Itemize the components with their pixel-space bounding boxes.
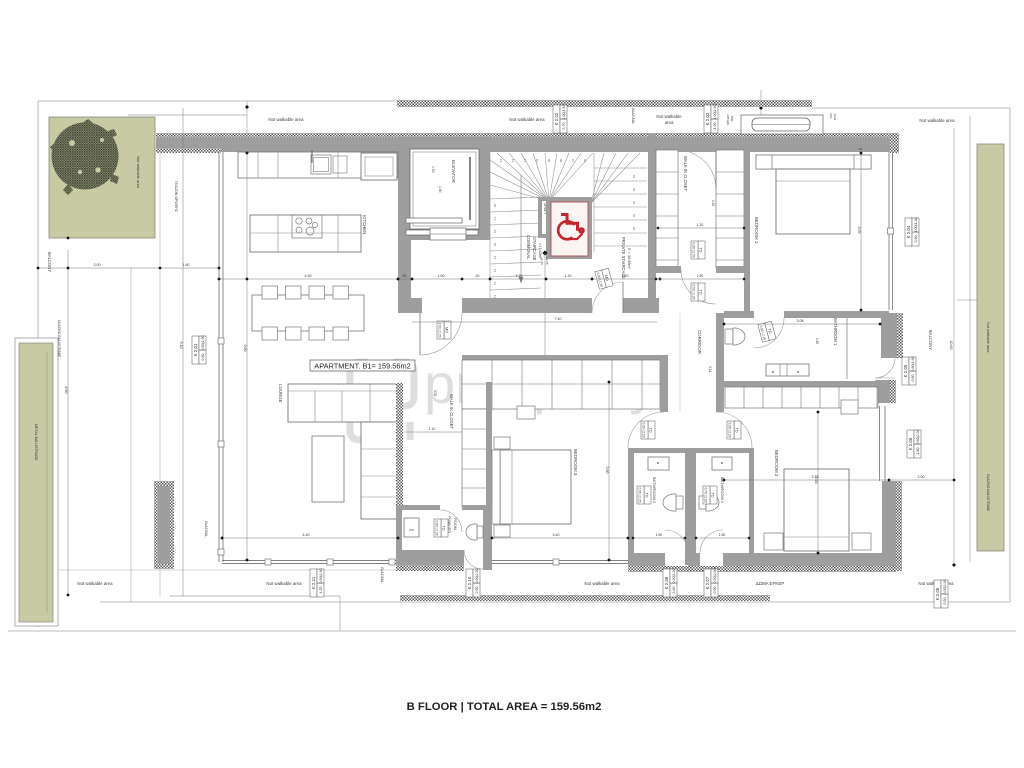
svg-text:.30: .30 [475, 274, 480, 278]
svg-text:1.00|1.45: 1.00|1.45 [562, 105, 566, 120]
svg-text:METAL BALUSTRADE: METAL BALUSTRADE [34, 424, 38, 461]
svg-text:STAIRCASE: STAIRCASE [532, 237, 537, 261]
svg-text:16: 16 [493, 230, 497, 234]
svg-text:1.80: 1.80 [438, 186, 442, 193]
svg-text:BATHROOM 3: BATHROOM 3 [652, 477, 657, 504]
svg-text:12: 12 [493, 282, 497, 286]
svg-text:11: 11 [493, 295, 497, 298]
svg-text:LOUNGE: LOUNGE [278, 384, 283, 403]
svg-text:.30: .30 [402, 274, 407, 278]
svg-text:0.90 | 2.20: 0.90 | 2.20 [642, 422, 646, 437]
svg-text:TD: TD [699, 289, 703, 294]
svg-text:Not walkable area: Not walkable area [268, 117, 304, 122]
svg-text:MW: MW [730, 116, 734, 121]
svg-text:1.80: 1.80 [183, 263, 190, 267]
svg-text:1.00 | 2.20: 1.00 | 2.20 [438, 322, 442, 337]
svg-text:14: 14 [493, 256, 497, 260]
svg-text:15: 15 [493, 243, 497, 247]
svg-text:02: 02 [632, 201, 636, 205]
svg-text:1.30: 1.30 [565, 274, 572, 278]
svg-text:1.10: 1.10 [429, 427, 436, 431]
svg-text:ΔΩΜΑ ΕΡΚΕΡ: ΔΩΜΑ ΕΡΚΕΡ [756, 581, 784, 586]
svg-text:VAV: VAV [829, 113, 833, 119]
svg-text:KITCHEN: KITCHEN [362, 215, 367, 234]
svg-text:0.50: 0.50 [943, 598, 947, 605]
svg-text:K 2.01: K 2.01 [193, 343, 198, 356]
svg-text:17: 17 [493, 217, 497, 221]
svg-text:1.90: 1.90 [656, 533, 663, 537]
svg-text:1.60: 1.60 [815, 338, 819, 344]
svg-text:COMMUNAL: COMMUNAL [526, 235, 531, 260]
svg-text:Not walkable area: Not walkable area [509, 117, 545, 122]
svg-text:BATHROOM 1: BATHROOM 1 [833, 318, 838, 346]
svg-text:E = 38.88m²: E = 38.88m² [627, 248, 631, 270]
svg-text:Not walkable: Not walkable [656, 114, 682, 119]
svg-text:10: 10 [535, 159, 539, 163]
svg-text:1.80: 1.80 [916, 448, 920, 455]
svg-text:0.50: 0.50 [475, 587, 479, 594]
svg-text:.46: .46 [858, 147, 863, 151]
svg-text:1.00|1.30: 1.00|1.30 [914, 218, 918, 233]
svg-text:9.60: 9.60 [243, 345, 247, 352]
svg-text:04: 04 [632, 175, 636, 179]
svg-text:2.20: 2.20 [711, 200, 715, 206]
svg-text:GLAZ.BAL.: GLAZ.BAL. [631, 108, 635, 125]
svg-text:Not walkable area: Not walkable area [77, 581, 113, 586]
svg-text:13: 13 [493, 269, 497, 273]
svg-text:TD: TD [442, 525, 446, 530]
svg-text:area: area [665, 120, 674, 125]
svg-text:3.40: 3.40 [553, 533, 560, 537]
svg-text:BEDROOM 1: BEDROOM 1 [754, 217, 759, 244]
svg-text:ELEVATOR: ELEVATOR [451, 160, 456, 183]
svg-text:03: 03 [632, 188, 636, 192]
svg-text:1.00|2.30: 1.00|2.30 [713, 105, 717, 120]
svg-text:08: 08 [559, 159, 563, 163]
svg-text:09: 09 [547, 159, 551, 163]
svg-text:4.30: 4.30 [305, 274, 312, 278]
svg-text:0.80|1.90: 0.80|1.90 [911, 357, 915, 372]
svg-text:0.90 | 2.50: 0.90 | 2.50 [692, 242, 696, 257]
svg-text:3.05: 3.05 [857, 227, 861, 234]
svg-text:ΓΚΑΖΟΝ ΟΡΟΦΗΣ: ΓΚΑΖΟΝ ΟΡΟΦΗΣ [174, 181, 178, 213]
svg-text:3.60: 3.60 [672, 587, 676, 594]
svg-text:9.10: 9.10 [179, 342, 183, 349]
svg-text:K 2.08: K 2.08 [935, 587, 940, 600]
svg-text:0.00|2.30: 0.00|2.30 [475, 569, 479, 584]
svg-text:K 2.05: K 2.05 [903, 364, 908, 377]
svg-text:0.60 | 2.20: 0.60 | 2.20 [435, 520, 439, 535]
svg-text:11: 11 [523, 159, 527, 162]
svg-text:3.31: 3.31 [708, 366, 712, 372]
svg-text:GLAZ.BAL.: GLAZ.BAL. [380, 567, 384, 584]
svg-text:WALK IN CLOSET: WALK IN CLOSET [449, 394, 454, 429]
svg-text:0.00|2.30: 0.00|2.30 [943, 580, 947, 595]
svg-text:GLAZING BALUSTRADE: GLAZING BALUSTRADE [986, 474, 990, 512]
svg-text:01: 01 [632, 214, 636, 218]
svg-text:2.00: 2.00 [918, 475, 925, 479]
svg-text:APARTMENT. B1= 159.56m2: APARTMENT. B1= 159.56m2 [314, 361, 410, 370]
svg-text:TD: TD [649, 427, 653, 432]
svg-text:PRIVATE STAIRCASE: PRIVATE STAIRCASE [621, 237, 626, 279]
svg-text:0.90 | 2.20: 0.90 | 2.20 [692, 284, 696, 299]
svg-text:Not walkable area: Not walkable area [136, 156, 141, 189]
svg-text:Not walkable area: Not walkable area [919, 118, 955, 123]
svg-text:GLAZING BALUSTRADE: GLAZING BALUSTRADE [57, 320, 61, 358]
svg-text:=17.63m²: =17.63m² [538, 243, 542, 260]
svg-text:1.00: 1.00 [713, 123, 717, 130]
svg-text:A/B light: A/B light [726, 114, 730, 125]
svg-text:K 2.04: K 2.04 [906, 225, 911, 238]
svg-text:0.50|1.90: 0.50|1.90 [201, 336, 205, 351]
svg-text:B FLOOR | TOTAL AREA = 159.56m: B FLOOR | TOTAL AREA = 159.56m2 [407, 701, 602, 713]
svg-text:GLAZ.BAL.: GLAZ.BAL. [204, 521, 208, 538]
svg-text:K 2.02: K 2.02 [554, 112, 559, 125]
svg-text:0.90 | 2.20: 0.90 | 2.20 [638, 487, 642, 502]
svg-text:10.60: 10.60 [949, 341, 953, 350]
svg-text:Not walkable area: Not walkable area [266, 581, 302, 586]
svg-text:TD: TD [711, 492, 715, 497]
svg-text:K 2.06: K 2.06 [908, 437, 913, 450]
svg-text:Cool: Cool [833, 114, 837, 121]
svg-text:MD: MD [445, 327, 449, 333]
svg-text:K 2.08: K 2.08 [664, 576, 669, 589]
svg-text:1.90: 1.90 [719, 533, 726, 537]
svg-text:0.00|2.30: 0.00|2.30 [319, 569, 323, 584]
svg-text:+4.25: +4.25 [545, 257, 549, 265]
svg-text:1.40: 1.40 [622, 274, 629, 278]
svg-text:K 2.11: K 2.11 [311, 576, 316, 589]
svg-text:00: 00 [632, 227, 636, 231]
svg-text:3.08: 3.08 [797, 319, 804, 323]
svg-text:3.70: 3.70 [562, 123, 566, 130]
svg-text:3.00: 3.00 [94, 263, 101, 267]
svg-text:06: 06 [583, 159, 587, 163]
svg-text:Not walkable area: Not walkable area [584, 581, 620, 586]
svg-text:K 2.10: K 2.10 [467, 576, 472, 589]
svg-text:18: 18 [493, 204, 497, 208]
svg-text:3.60: 3.60 [605, 467, 609, 474]
svg-text:CORRIDOR: CORRIDOR [697, 330, 702, 354]
svg-text:WALK IN CLOSET: WALK IN CLOSET [683, 156, 688, 191]
svg-text:0.70 | 2.20: 0.70 | 2.20 [704, 487, 708, 502]
svg-text:TD: TD [699, 247, 703, 252]
svg-text:BEDROOM 2: BEDROOM 2 [774, 450, 779, 477]
svg-text:13: 13 [499, 159, 503, 163]
svg-text:1.50: 1.50 [431, 166, 435, 173]
svg-text:3.90: 3.90 [914, 236, 918, 243]
svg-text:BEDROOM 3: BEDROOM 3 [573, 449, 578, 476]
svg-text:0.80: 0.80 [201, 354, 205, 361]
svg-text:TD: TD [645, 492, 649, 497]
svg-text:0.90: 0.90 [713, 587, 717, 594]
svg-text:3.00: 3.00 [814, 477, 818, 484]
svg-text:ROOM: ROOM [453, 518, 457, 530]
svg-text:4.25: 4.25 [319, 587, 323, 594]
svg-text:3.00: 3.00 [433, 390, 437, 396]
svg-text:1.90: 1.90 [697, 274, 704, 278]
svg-text:0.90 | 2.20: 0.90 | 2.20 [728, 422, 732, 437]
svg-text:1.60: 1.60 [438, 274, 445, 278]
svg-text:4.40: 4.40 [303, 533, 310, 537]
svg-text:7.40: 7.40 [555, 317, 562, 321]
svg-text:12: 12 [511, 159, 515, 163]
svg-text:8.50: 8.50 [64, 387, 68, 394]
svg-text:0.00|2.30: 0.00|2.30 [713, 569, 717, 584]
svg-text:K 2.07: K 2.07 [705, 576, 710, 589]
svg-text:1.20: 1.20 [697, 223, 704, 227]
svg-text:BALCONY: BALCONY [47, 252, 52, 272]
svg-text:Not walkable area: Not walkable area [986, 322, 990, 353]
svg-text:K 2.03: K 2.03 [705, 112, 710, 125]
svg-text:07: 07 [571, 159, 575, 163]
svg-text:0.80|2.30: 0.80|2.30 [916, 430, 920, 445]
svg-text:TD: TD [735, 427, 739, 432]
svg-text:0.80: 0.80 [911, 375, 915, 382]
svg-text:BALCONY: BALCONY [928, 330, 933, 350]
svg-text:1.20: 1.20 [516, 274, 523, 278]
svg-text:0.00|2.30: 0.00|2.30 [672, 569, 676, 584]
